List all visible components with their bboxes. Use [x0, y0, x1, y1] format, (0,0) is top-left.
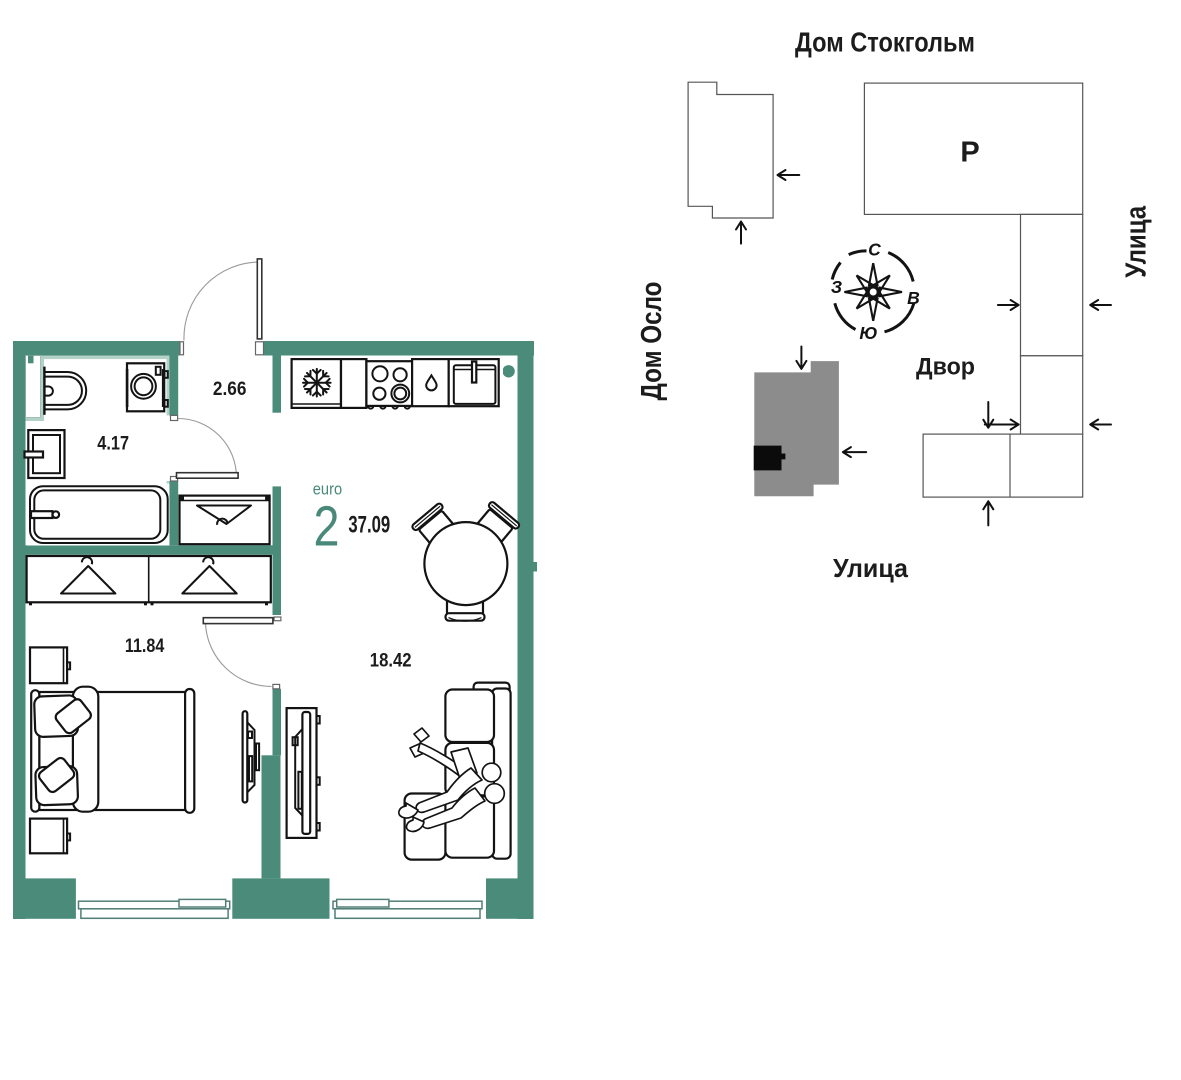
- svg-text:Дом Стокгольм: Дом Стокгольм: [795, 27, 975, 58]
- svg-text:37.09: 37.09: [348, 511, 390, 538]
- svg-text:Ю: Ю: [859, 323, 877, 343]
- svg-text:2.66: 2.66: [213, 378, 247, 400]
- svg-text:В: В: [907, 288, 920, 308]
- svg-text:4.17: 4.17: [97, 432, 129, 454]
- svg-text:З: З: [831, 277, 842, 297]
- svg-text:Дом Осло: Дом Осло: [636, 282, 668, 401]
- svg-text:С: С: [868, 240, 881, 260]
- svg-text:Р: Р: [960, 137, 979, 169]
- svg-text:Улица: Улица: [1121, 205, 1153, 278]
- svg-text:Двор: Двор: [916, 354, 975, 381]
- svg-text:Улица: Улица: [833, 553, 909, 583]
- svg-text:2: 2: [314, 495, 340, 558]
- svg-text:18.42: 18.42: [370, 649, 412, 671]
- svg-text:11.84: 11.84: [125, 635, 165, 657]
